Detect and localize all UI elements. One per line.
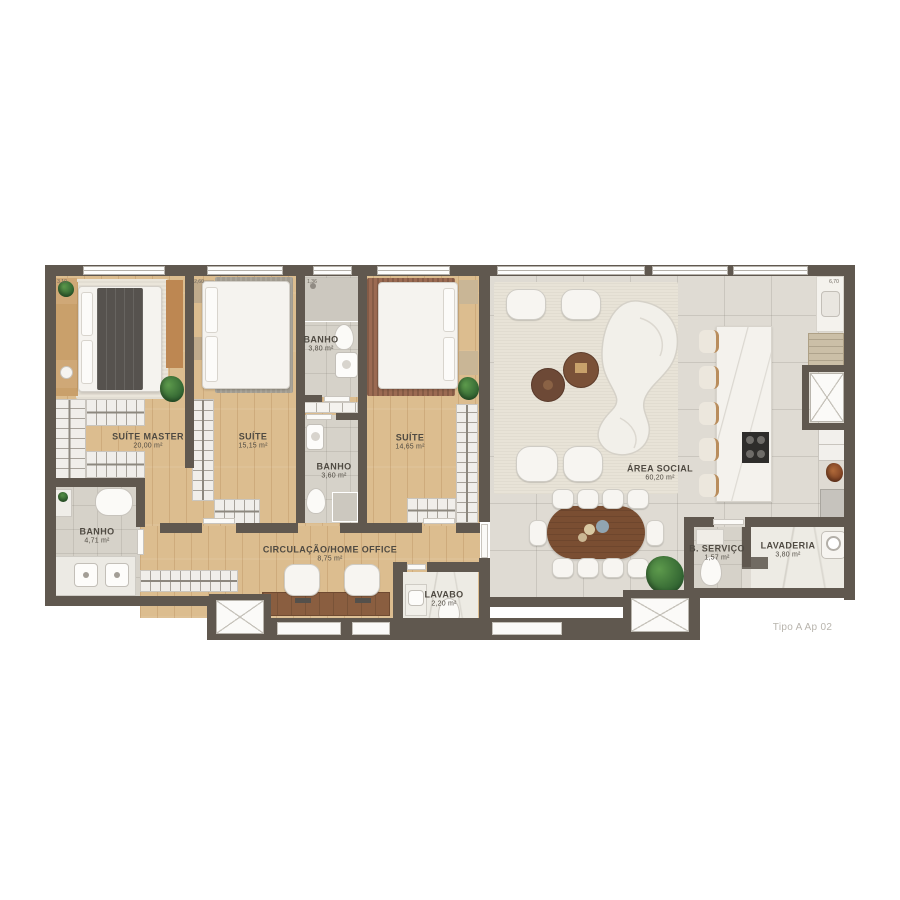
duct-shaft bbox=[352, 622, 390, 635]
window bbox=[207, 266, 283, 275]
wall bbox=[802, 365, 809, 430]
bar-stool bbox=[699, 438, 719, 461]
wall bbox=[802, 423, 850, 430]
wall bbox=[45, 265, 56, 606]
bar-stool bbox=[699, 366, 719, 389]
window bbox=[313, 266, 352, 275]
room-label-circulacao: CIRCULAÇÃO/HOME OFFICE 8,75 m² bbox=[263, 544, 397, 563]
window bbox=[83, 266, 165, 275]
bathtub bbox=[95, 488, 133, 516]
wall bbox=[479, 597, 629, 607]
dimension-label: 6,70 bbox=[829, 279, 839, 285]
nightstand bbox=[459, 280, 478, 304]
room-label-b-servico: B. SERVIÇO 1,57 m² bbox=[689, 543, 745, 562]
room-area: 8,75 m² bbox=[317, 555, 342, 563]
dining-chair bbox=[552, 558, 574, 578]
room-area: 3,80 m² bbox=[775, 551, 800, 559]
toilet bbox=[306, 488, 326, 514]
wall bbox=[456, 523, 480, 533]
room-label-banho-master: BANHO 4,71 m² bbox=[80, 526, 115, 545]
door bbox=[713, 519, 744, 525]
dimension-label: 1,36 bbox=[307, 279, 317, 285]
closet-circulation bbox=[140, 570, 238, 592]
room-area: 15,15 m² bbox=[238, 442, 267, 450]
wall bbox=[393, 562, 403, 638]
wall bbox=[802, 365, 850, 372]
office-chair bbox=[284, 564, 320, 596]
decor-bowl bbox=[578, 533, 587, 542]
dining-chair bbox=[627, 489, 649, 509]
room-label-banho-suite-2: BANHO 3,80 m² bbox=[304, 334, 339, 353]
wall bbox=[479, 265, 490, 522]
wall bbox=[300, 395, 322, 402]
burner-icon bbox=[757, 450, 765, 458]
room-label-suite-2: SUÍTE 15,15 m² bbox=[238, 431, 267, 450]
coffee-station bbox=[808, 333, 844, 368]
kitchen-sink bbox=[821, 291, 840, 317]
decor-bowl bbox=[543, 380, 553, 390]
wall bbox=[340, 523, 422, 533]
dimension-label: 2,60 bbox=[194, 279, 204, 285]
door bbox=[324, 396, 350, 402]
room-area: 3,80 m² bbox=[308, 345, 333, 353]
closet-suite-master bbox=[86, 399, 145, 426]
door bbox=[423, 518, 455, 524]
window bbox=[377, 266, 450, 275]
pillow bbox=[443, 288, 455, 332]
door bbox=[481, 524, 488, 558]
room-name: BANHO bbox=[317, 461, 352, 472]
room-area: 1,57 m² bbox=[704, 554, 729, 562]
monitor-icon bbox=[355, 598, 371, 603]
door bbox=[306, 414, 332, 420]
duct-shaft bbox=[810, 373, 844, 422]
plan-signature: Tipo A Ap 02 bbox=[745, 622, 860, 633]
dining-table bbox=[547, 506, 645, 559]
pillow bbox=[443, 337, 455, 381]
wall bbox=[185, 276, 194, 468]
plant-icon bbox=[160, 376, 184, 402]
kitchen-cabinet bbox=[820, 489, 846, 520]
bar-stool bbox=[699, 402, 719, 425]
decor-bowl bbox=[596, 520, 609, 533]
bar-stool bbox=[699, 474, 719, 497]
wall bbox=[690, 588, 855, 598]
wall bbox=[160, 523, 202, 533]
closet-suite-master bbox=[53, 399, 86, 479]
dining-chair bbox=[577, 489, 599, 509]
duct-shaft bbox=[492, 622, 562, 635]
monitor-icon bbox=[295, 598, 311, 603]
closet-suite-master bbox=[86, 451, 145, 478]
flower-vase bbox=[826, 463, 843, 482]
room-area: 2,20 m² bbox=[431, 600, 456, 608]
sink-basin bbox=[83, 572, 89, 578]
pillow bbox=[205, 287, 218, 333]
curved-sofa bbox=[580, 298, 684, 462]
wall bbox=[136, 487, 145, 527]
door bbox=[137, 529, 144, 555]
room-name: LAVADERIA bbox=[761, 540, 816, 551]
room-label-lavaderia: LAVADERIA 3,80 m² bbox=[761, 540, 816, 559]
shower bbox=[332, 492, 358, 522]
office-chair bbox=[344, 564, 380, 596]
dimension-label: 3,10 bbox=[57, 279, 67, 285]
duct-shaft bbox=[216, 600, 264, 634]
door bbox=[203, 518, 235, 524]
room-area: 60,20 m² bbox=[645, 474, 674, 482]
duvet-suite-master bbox=[97, 288, 143, 390]
room-label-banho-suite-3: BANHO 3,60 m² bbox=[317, 461, 352, 480]
nightstand bbox=[459, 351, 478, 375]
dining-chair bbox=[646, 520, 664, 546]
room-name: B. SERVIÇO bbox=[689, 543, 745, 554]
dining-chair bbox=[577, 558, 599, 578]
wall bbox=[844, 265, 855, 600]
decor-bowl bbox=[60, 366, 73, 379]
vanity-sink bbox=[408, 590, 424, 606]
lounge-chair bbox=[516, 446, 558, 482]
wall bbox=[358, 276, 367, 523]
window bbox=[733, 266, 808, 275]
door bbox=[407, 564, 426, 570]
floorplan: SUÍTE MASTER 20,00 m² SUÍTE 15,15 m² BAN… bbox=[0, 0, 900, 900]
window bbox=[652, 266, 728, 275]
room-name: SUÍTE MASTER bbox=[112, 431, 184, 442]
room-label-suite-3: SUÍTE 14,65 m² bbox=[395, 432, 424, 451]
plant-icon bbox=[458, 377, 479, 400]
room-area: 14,65 m² bbox=[395, 443, 424, 451]
burner-icon bbox=[757, 436, 765, 444]
sink-basin bbox=[342, 360, 351, 369]
room-name: ÁREA SOCIAL bbox=[627, 463, 693, 474]
room-name: CIRCULAÇÃO/HOME OFFICE bbox=[263, 544, 397, 555]
wall bbox=[45, 478, 145, 487]
room-label-suite-master: SUÍTE MASTER 20,00 m² bbox=[112, 431, 184, 450]
wall bbox=[427, 562, 480, 572]
pillow bbox=[205, 336, 218, 382]
window bbox=[497, 266, 645, 275]
room-label-lavabo: LAVABO 2,20 m² bbox=[424, 589, 463, 608]
sink-basin bbox=[311, 432, 320, 441]
plant-icon bbox=[58, 492, 68, 502]
wall bbox=[236, 523, 298, 533]
bar-stool bbox=[699, 330, 719, 353]
room-name: BANHO bbox=[304, 334, 339, 345]
washer-drum-icon bbox=[826, 536, 841, 551]
wall bbox=[745, 517, 855, 527]
pillow bbox=[81, 340, 93, 384]
room-name: BANHO bbox=[80, 526, 115, 537]
burner-icon bbox=[746, 436, 754, 444]
burner-icon bbox=[746, 450, 754, 458]
pillow bbox=[81, 292, 93, 336]
room-name: SUÍTE bbox=[239, 431, 268, 442]
dining-chair bbox=[602, 489, 624, 509]
wood-panel-suite-master bbox=[166, 280, 183, 368]
kitchen-island bbox=[716, 326, 772, 502]
room-label-area-social: ÁREA SOCIAL 60,20 m² bbox=[627, 463, 693, 482]
linen-shelf bbox=[303, 402, 358, 413]
duct-shaft bbox=[277, 622, 341, 635]
closet-suite-2 bbox=[192, 399, 214, 501]
room-area: 4,71 m² bbox=[84, 537, 109, 545]
sink-basin bbox=[114, 572, 120, 578]
dining-chair bbox=[602, 558, 624, 578]
room-area: 3,60 m² bbox=[321, 472, 346, 480]
room-name: LAVABO bbox=[424, 589, 463, 600]
duct-shaft bbox=[631, 598, 689, 632]
wall bbox=[336, 413, 358, 420]
plant-icon bbox=[646, 556, 684, 594]
room-name: SUÍTE bbox=[396, 432, 425, 443]
pouf bbox=[506, 289, 546, 320]
dining-chair bbox=[529, 520, 547, 546]
room-area: 20,00 m² bbox=[133, 442, 162, 450]
refrigerator bbox=[818, 428, 845, 461]
wall bbox=[45, 596, 217, 606]
closet-suite-3 bbox=[456, 404, 478, 523]
dining-chair bbox=[552, 489, 574, 509]
